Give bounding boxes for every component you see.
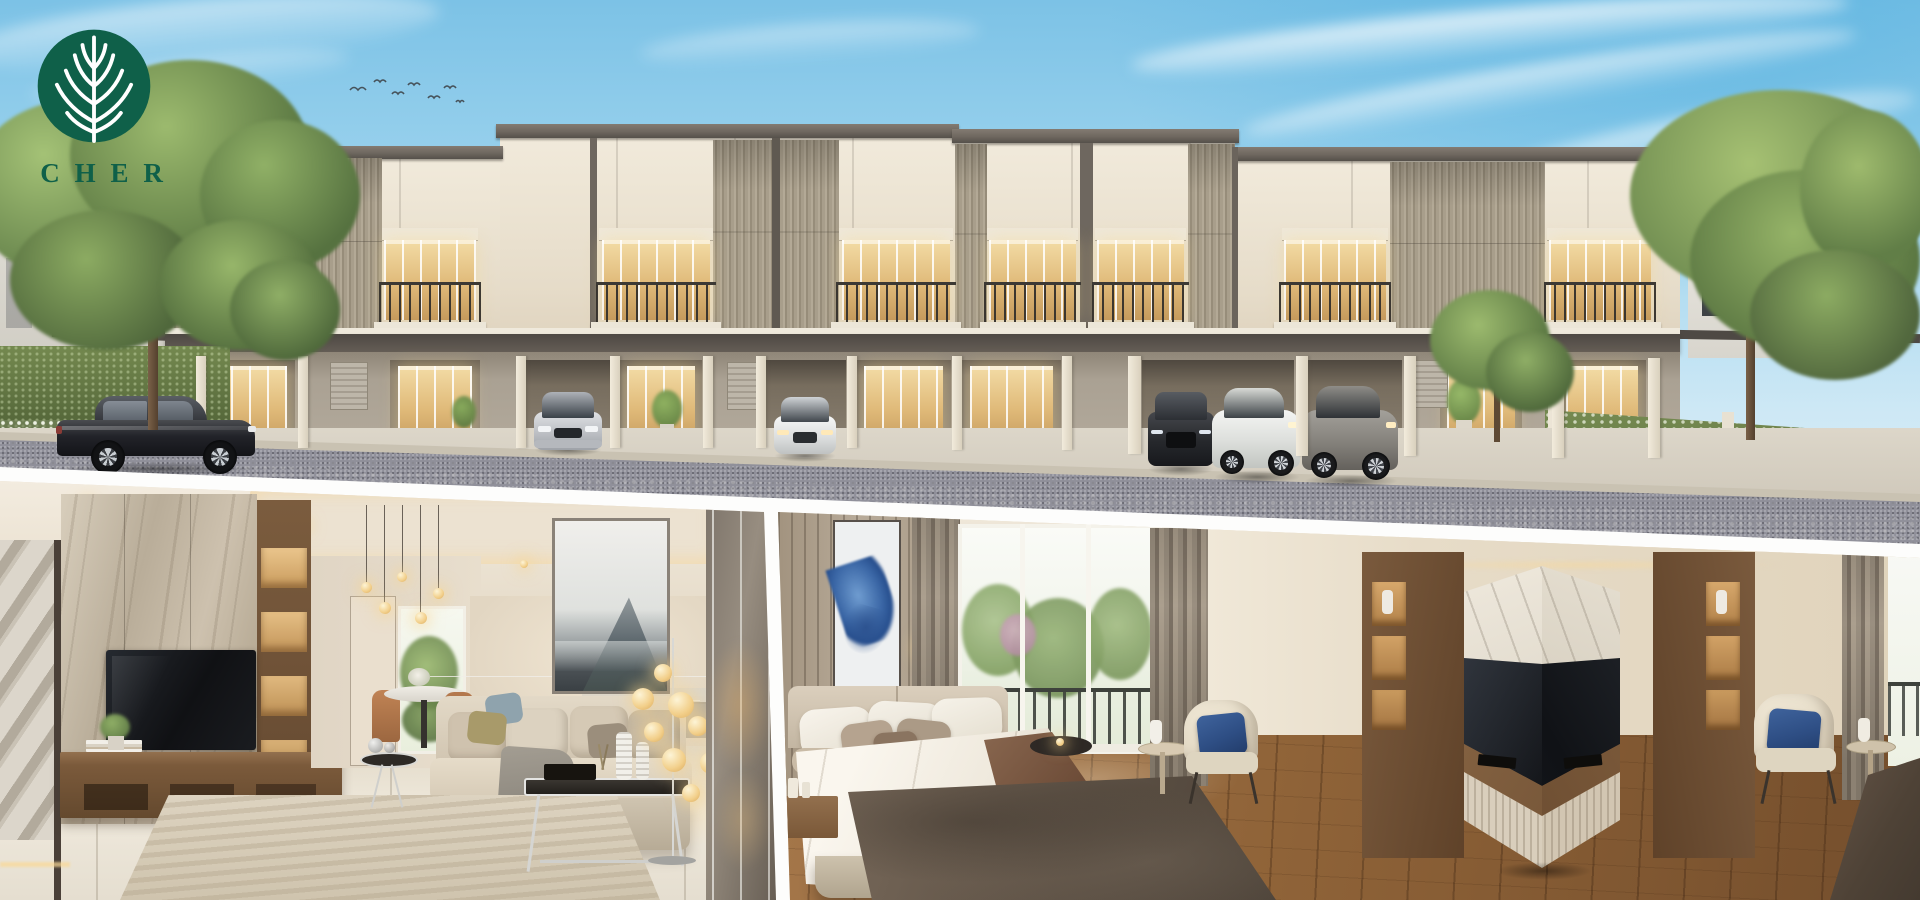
tree-small-mid-right xyxy=(1420,280,1580,460)
stair-landing-wood xyxy=(0,818,140,900)
slat-panel xyxy=(1188,144,1235,332)
car-garage-sedan-white xyxy=(774,392,836,464)
decor-sphere xyxy=(384,742,395,753)
table-jug xyxy=(1150,720,1162,744)
accent-pillow-olive xyxy=(466,710,507,746)
slat-panel xyxy=(955,144,987,332)
blue-abstract-artwork xyxy=(833,520,901,688)
chandelier-globe xyxy=(379,602,391,614)
car-garage-coupe-grey xyxy=(1302,380,1398,490)
rug-ribbing xyxy=(120,795,660,900)
lamp-globe xyxy=(644,722,664,742)
shelf-vase xyxy=(1382,590,1393,614)
garage-pillar xyxy=(516,356,526,448)
cabinet-shelf-glow xyxy=(1706,690,1740,730)
bedside-candle xyxy=(802,782,810,798)
garage-pillar xyxy=(1128,356,1141,454)
window-mullion xyxy=(1086,524,1091,746)
chandelier-globe xyxy=(397,572,407,582)
lamp-globe xyxy=(682,784,700,802)
chandelier-cord xyxy=(438,505,439,589)
brand-wordmark: CHER xyxy=(24,158,184,189)
side-table-pedestal xyxy=(1160,752,1165,794)
marketing-collage: CHER xyxy=(0,0,1920,900)
water-reflection xyxy=(555,641,667,671)
prow-floor-shadow xyxy=(1496,862,1592,880)
armchair-seat xyxy=(1186,752,1258,774)
chandelier-cord xyxy=(384,505,385,603)
round-side-table xyxy=(360,752,418,768)
chandelier-globe xyxy=(361,582,372,593)
decor-sphere xyxy=(368,738,383,753)
roof-fascia xyxy=(952,129,1239,143)
leaf-tree-circle-icon xyxy=(30,22,158,150)
chandelier-cord xyxy=(420,505,421,613)
tray-candle xyxy=(1056,738,1064,746)
staircase xyxy=(0,540,58,840)
tree-right xyxy=(1600,70,1920,450)
garage-pillar xyxy=(847,356,857,448)
car-garage-sedan-silver xyxy=(534,386,602,458)
shelf-slot xyxy=(261,612,307,652)
shelf-slot xyxy=(261,548,307,588)
shelf-slot xyxy=(261,676,307,716)
chandelier-globe xyxy=(433,588,444,599)
dining-table-pedestal xyxy=(421,700,427,748)
table-flowers xyxy=(408,668,430,686)
car-garage-suv-charcoal xyxy=(1148,386,1214,478)
bedside-shelf xyxy=(780,796,838,838)
shelf-vase xyxy=(1716,590,1727,614)
garage-pillar xyxy=(1404,356,1416,456)
mountain-artwork xyxy=(552,518,670,694)
chandelier-cord xyxy=(402,505,403,573)
mirror-warm-reflection xyxy=(714,770,772,870)
ribbed-vase xyxy=(616,732,632,780)
lamp-globe xyxy=(662,748,686,772)
cabinet-shelf-glow xyxy=(1372,690,1406,730)
window-mullion xyxy=(1020,524,1025,746)
sliver-railing xyxy=(1888,682,1920,736)
lamp-globe xyxy=(632,688,654,710)
lamp-globe xyxy=(688,716,708,736)
car-garage-coupe-white xyxy=(1212,382,1300,486)
window-blossom-tree xyxy=(1000,614,1036,656)
console-slot xyxy=(84,784,148,810)
lamp-globe xyxy=(654,664,672,682)
black-tray-box xyxy=(544,764,596,780)
cabinet-shelf-glow xyxy=(1372,636,1406,680)
window-tree xyxy=(1088,588,1152,680)
potted-plant xyxy=(652,390,682,428)
chrome-coffee-table xyxy=(524,778,690,796)
potted-plant xyxy=(452,396,476,428)
chandelier-cord xyxy=(366,505,367,583)
plant-pot xyxy=(108,736,124,750)
garage-pillar xyxy=(1296,356,1308,456)
lamp-globe xyxy=(668,692,694,718)
bedside-candle xyxy=(788,778,798,798)
stair-step-light xyxy=(0,862,70,867)
garage-pillar xyxy=(756,356,766,448)
table-vase xyxy=(1858,718,1870,742)
brand-logo: CHER xyxy=(24,20,164,190)
curtain xyxy=(1842,548,1884,800)
tv-corner-assembly xyxy=(1460,560,1660,880)
armchair-seat xyxy=(1756,748,1836,772)
roof-fascia xyxy=(496,124,959,138)
cabinet-shelf-glow xyxy=(1706,636,1740,680)
garage-pillar xyxy=(952,356,962,450)
garage-pillar xyxy=(703,356,713,448)
garage-pillar xyxy=(1062,356,1072,450)
facade-column xyxy=(772,138,780,334)
garage-pillar xyxy=(610,356,620,448)
facade-column xyxy=(1232,147,1238,333)
lamp-base xyxy=(648,856,696,865)
mirror-warm-reflection xyxy=(708,640,772,770)
ceiling-downlight xyxy=(520,560,528,568)
chandelier-globe xyxy=(415,612,427,624)
ribbed-vase xyxy=(636,742,649,780)
